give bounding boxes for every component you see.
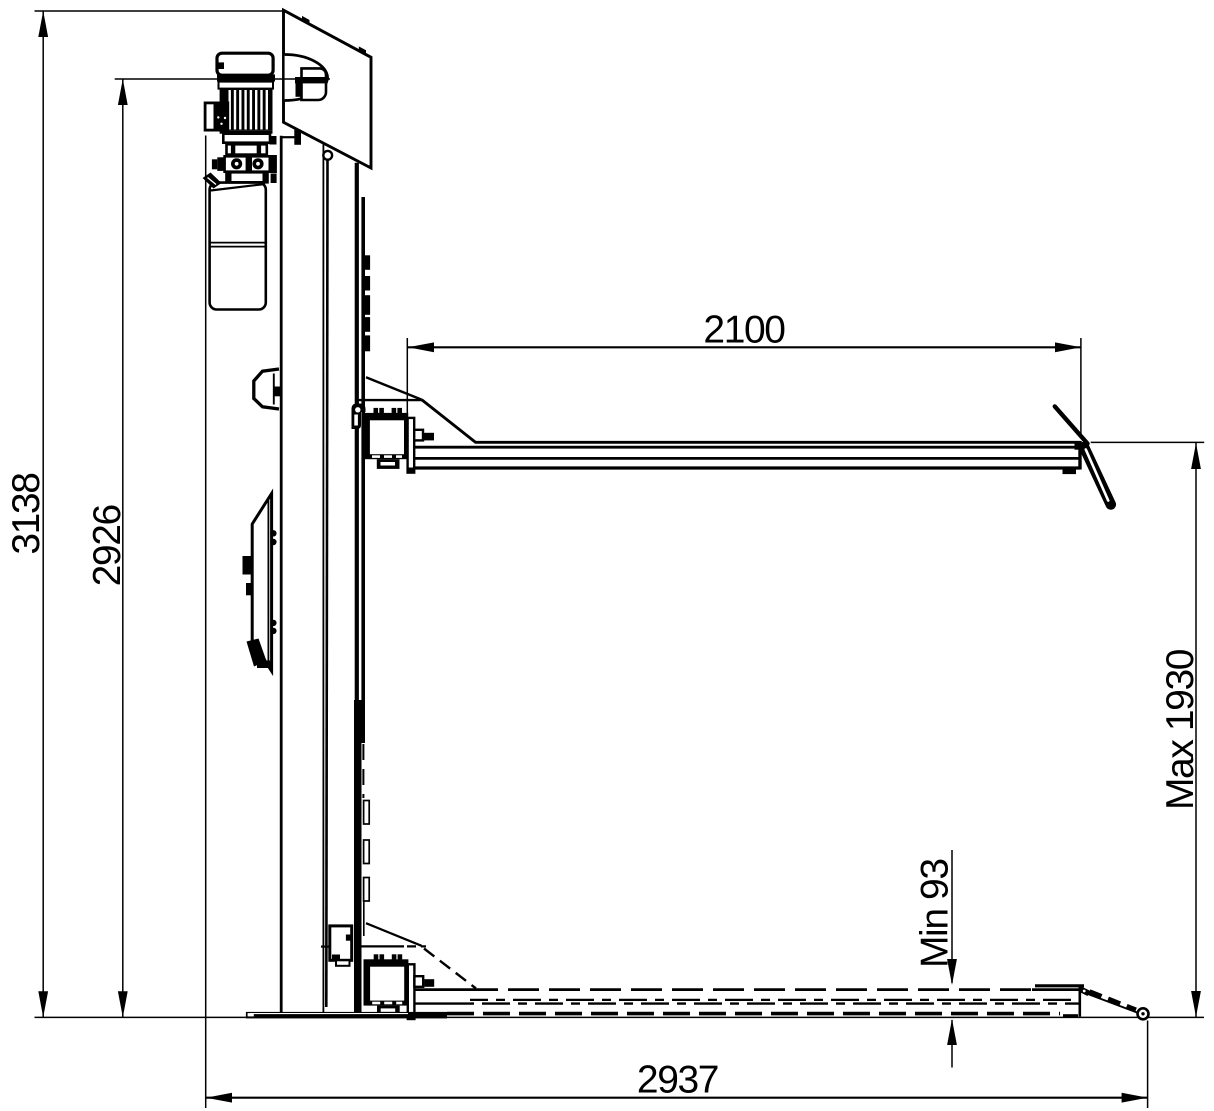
svg-text:2926: 2926: [86, 505, 129, 586]
svg-text:2100: 2100: [703, 309, 785, 352]
svg-text:3138: 3138: [5, 474, 48, 555]
svg-text:Min 93: Min 93: [913, 859, 956, 968]
svg-text:2937: 2937: [637, 1059, 718, 1102]
svg-text:Max 1930: Max 1930: [1159, 649, 1202, 810]
